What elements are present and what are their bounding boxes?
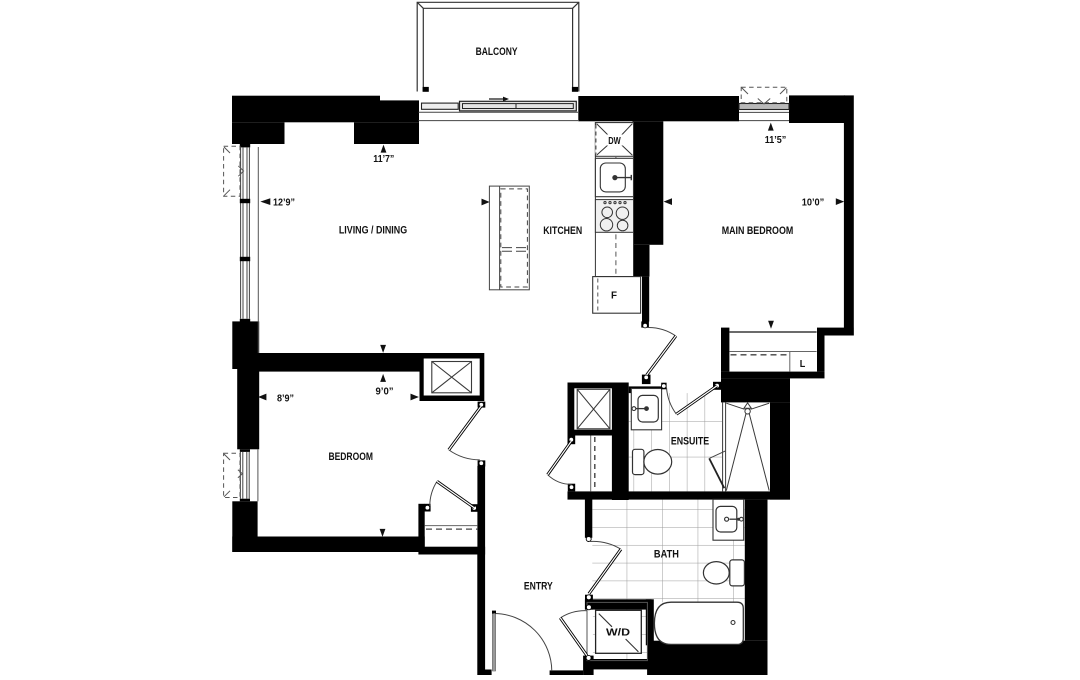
svg-text:BALCONY: BALCONY <box>476 46 519 58</box>
svg-text:LIVING / DINING: LIVING / DINING <box>339 224 407 236</box>
svg-text:11’5”: 11’5” <box>765 135 787 146</box>
svg-text:KITCHEN: KITCHEN <box>543 225 582 237</box>
svg-text:10’0”: 10’0” <box>802 198 825 209</box>
svg-text:ENSUITE: ENSUITE <box>671 436 709 448</box>
svg-text:L: L <box>800 358 806 370</box>
svg-text:MAIN BEDROOM: MAIN BEDROOM <box>722 225 794 237</box>
svg-text:9’0”: 9’0” <box>376 387 394 398</box>
svg-text:BEDROOM: BEDROOM <box>328 451 373 463</box>
svg-text:ENTRY: ENTRY <box>524 581 553 593</box>
svg-text:DW: DW <box>608 135 621 147</box>
svg-text:11’7”: 11’7” <box>373 154 394 165</box>
svg-text:8’9”: 8’9” <box>277 393 294 404</box>
svg-text:BATH: BATH <box>654 549 679 561</box>
svg-text:W/D: W/D <box>606 627 630 639</box>
svg-text:12’9”: 12’9” <box>273 198 295 209</box>
svg-text:F: F <box>611 290 618 302</box>
